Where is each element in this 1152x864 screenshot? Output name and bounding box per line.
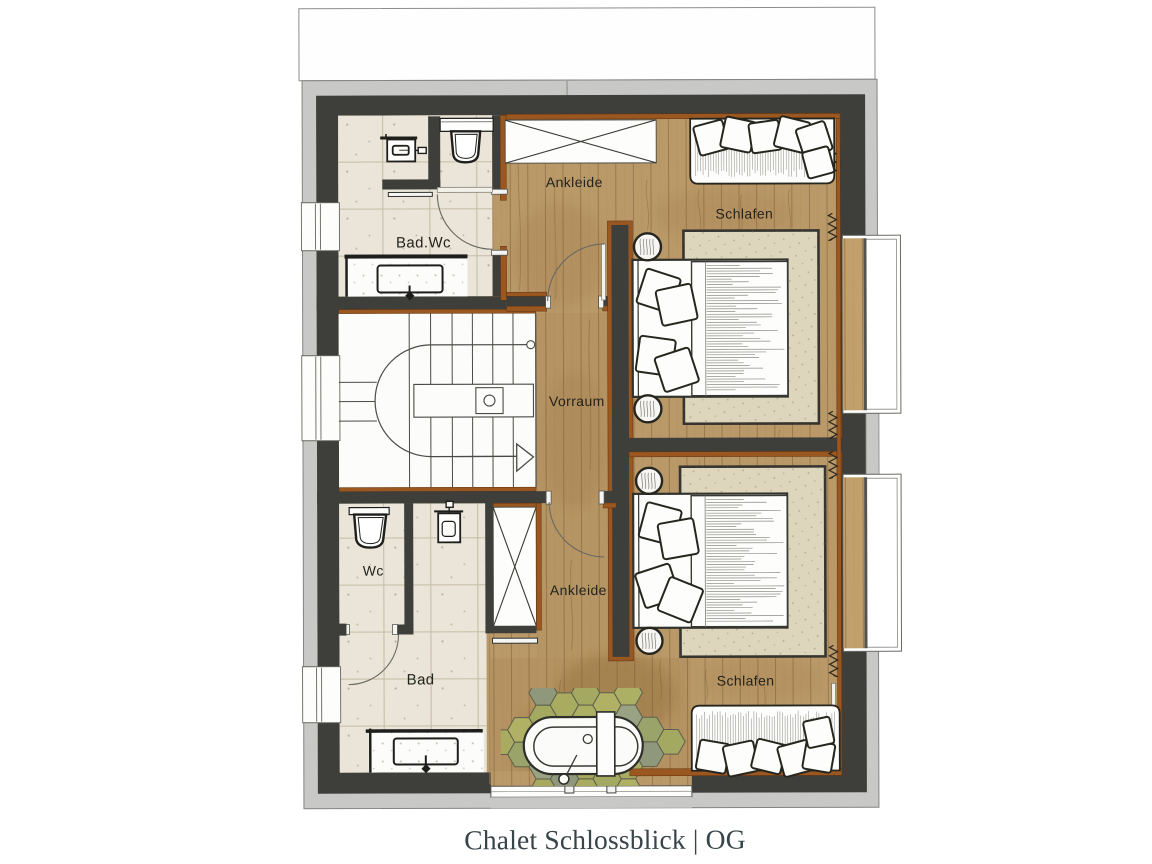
svg-text:Ankleide: Ankleide bbox=[546, 174, 603, 190]
svg-text:Vorraum: Vorraum bbox=[549, 393, 605, 409]
svg-text:Wc: Wc bbox=[363, 563, 384, 579]
svg-text:Schlafen: Schlafen bbox=[716, 206, 774, 222]
svg-text:Bad: Bad bbox=[407, 671, 435, 688]
svg-text:Schlafen: Schlafen bbox=[717, 673, 775, 689]
svg-text:Ankleide: Ankleide bbox=[550, 582, 607, 598]
svg-text:Bad.Wc: Bad.Wc bbox=[396, 234, 451, 251]
svg-text:Chalet Schlossblick | OG: Chalet Schlossblick | OG bbox=[464, 824, 746, 856]
